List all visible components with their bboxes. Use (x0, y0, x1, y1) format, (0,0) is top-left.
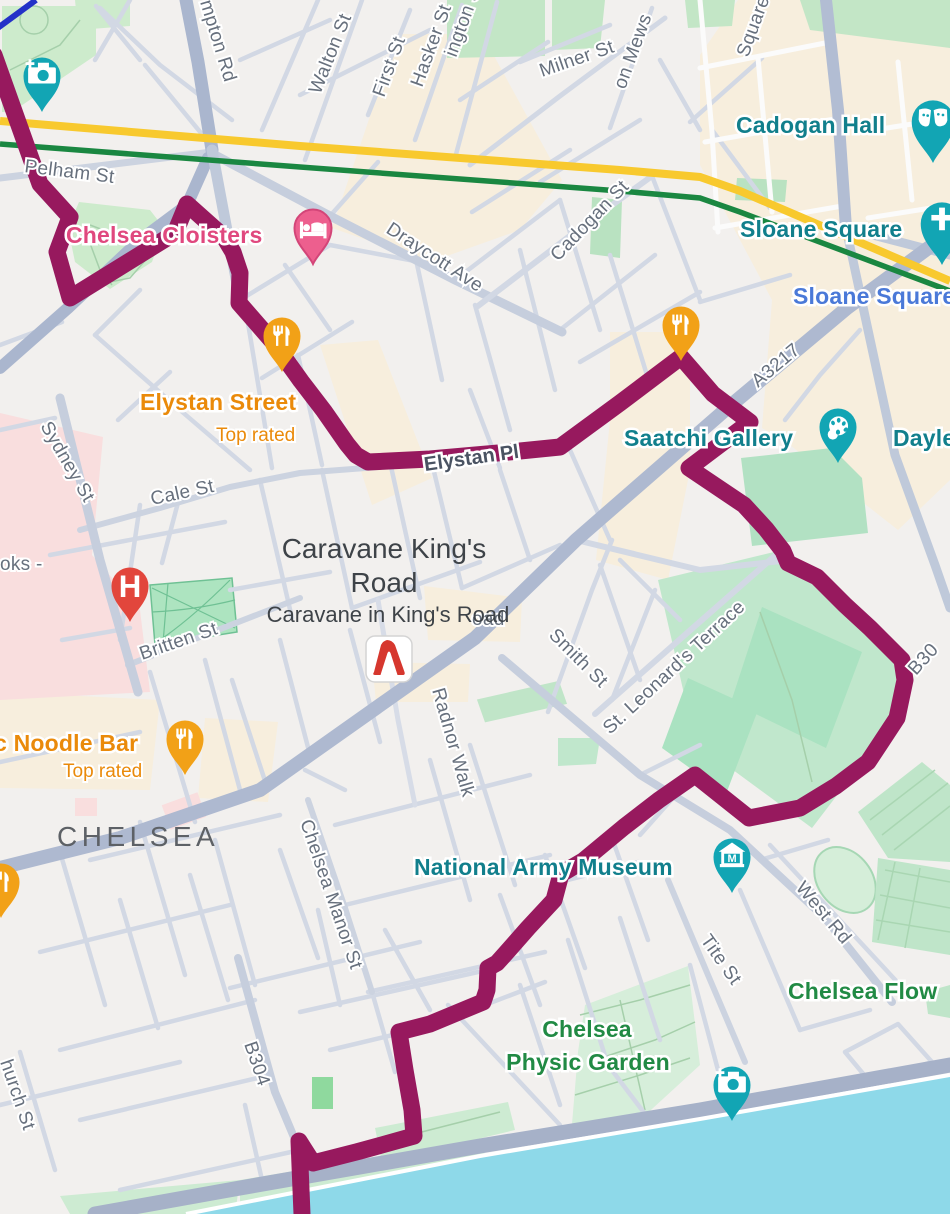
svg-text:CHELSEA: CHELSEA (57, 821, 219, 852)
svg-text:Caravane in King's Road: Caravane in King's Road (267, 602, 510, 627)
svg-text:Top rated: Top rated (63, 761, 142, 782)
svg-text:Chelsea Flow: Chelsea Flow (788, 978, 937, 1004)
svg-text:oks -: oks - (0, 554, 43, 575)
svg-text:Dayle: Dayle (893, 425, 950, 451)
svg-text:Road: Road (351, 567, 418, 598)
svg-text:Caravane King's: Caravane King's (282, 533, 487, 564)
svg-text:c Noodle Bar: c Noodle Bar (0, 730, 138, 756)
svg-text:Saatchi Gallery: Saatchi Gallery (624, 425, 793, 451)
svg-text:Cadogan Hall: Cadogan Hall (736, 112, 885, 138)
svg-text:M: M (727, 853, 736, 865)
svg-text:H: H (119, 569, 142, 604)
svg-text:Sloane Square: Sloane Square (740, 216, 902, 242)
svg-text:Chelsea: Chelsea (542, 1016, 632, 1042)
svg-text:Top rated: Top rated (216, 425, 295, 446)
svg-text:Chelsea Cloisters: Chelsea Cloisters (66, 222, 262, 248)
svg-text:National Army Museum: National Army Museum (414, 854, 673, 880)
svg-text:Sloane Square: Sloane Square (793, 283, 950, 309)
svg-text:Physic Garden: Physic Garden (506, 1049, 670, 1075)
svg-text:Elystan Street: Elystan Street (140, 389, 296, 415)
